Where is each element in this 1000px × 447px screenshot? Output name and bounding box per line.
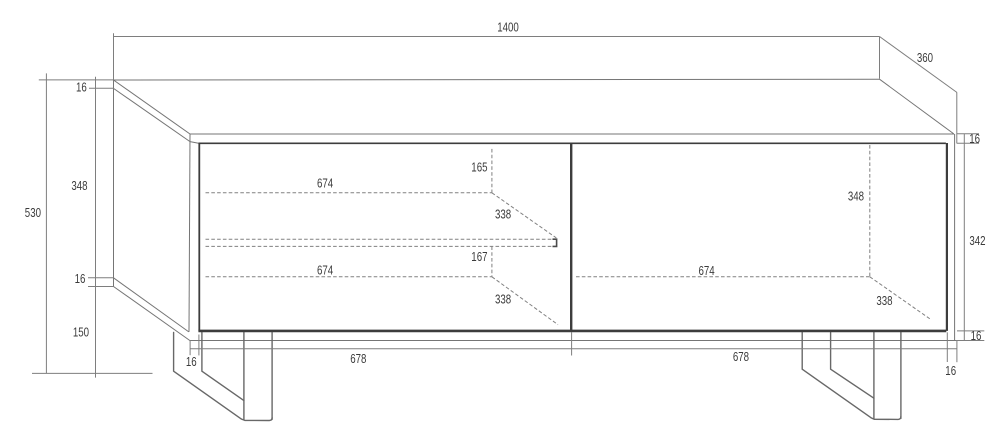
svg-text:678: 678 — [350, 351, 366, 366]
svg-text:674: 674 — [317, 176, 333, 191]
svg-text:16: 16 — [969, 131, 980, 146]
svg-text:1400: 1400 — [497, 19, 519, 34]
svg-text:338: 338 — [495, 291, 511, 306]
svg-text:16: 16 — [971, 328, 982, 343]
svg-text:678: 678 — [733, 349, 749, 364]
svg-text:167: 167 — [471, 249, 487, 264]
svg-text:674: 674 — [699, 263, 715, 278]
svg-text:360: 360 — [917, 50, 933, 65]
svg-text:348: 348 — [848, 189, 864, 204]
svg-text:348: 348 — [71, 178, 87, 193]
svg-text:530: 530 — [25, 205, 41, 220]
svg-text:342: 342 — [969, 233, 985, 248]
svg-text:150: 150 — [73, 325, 89, 340]
svg-text:16: 16 — [75, 271, 86, 286]
svg-text:674: 674 — [317, 262, 333, 277]
svg-text:165: 165 — [471, 159, 487, 174]
svg-text:16: 16 — [76, 80, 87, 95]
svg-text:16: 16 — [186, 354, 197, 369]
svg-text:16: 16 — [945, 363, 956, 378]
svg-text:338: 338 — [495, 206, 511, 221]
svg-text:338: 338 — [876, 293, 892, 308]
